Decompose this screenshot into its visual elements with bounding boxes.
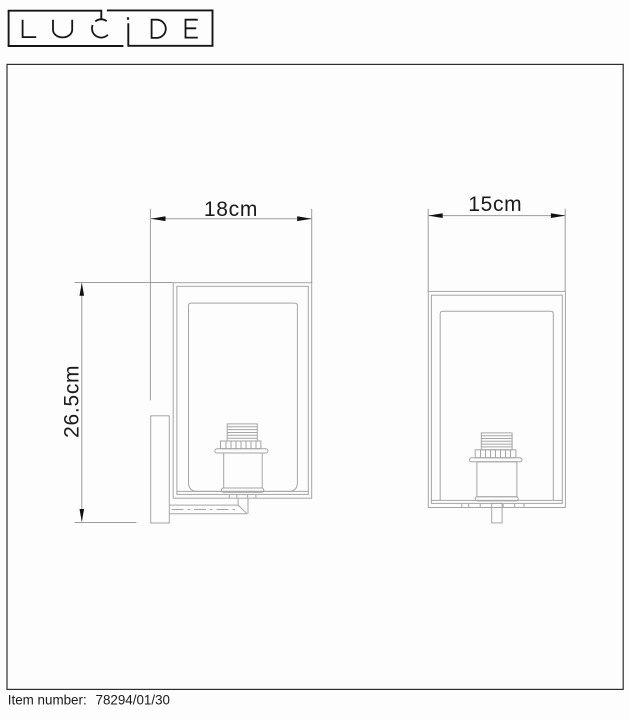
- svg-text:26.5cm: 26.5cm: [61, 365, 84, 438]
- svg-text:18cm: 18cm: [204, 198, 258, 221]
- svg-text:Item number:: Item number:: [8, 693, 87, 708]
- svg-text:15cm: 15cm: [468, 193, 522, 216]
- svg-text:78294/01/30: 78294/01/30: [96, 693, 170, 708]
